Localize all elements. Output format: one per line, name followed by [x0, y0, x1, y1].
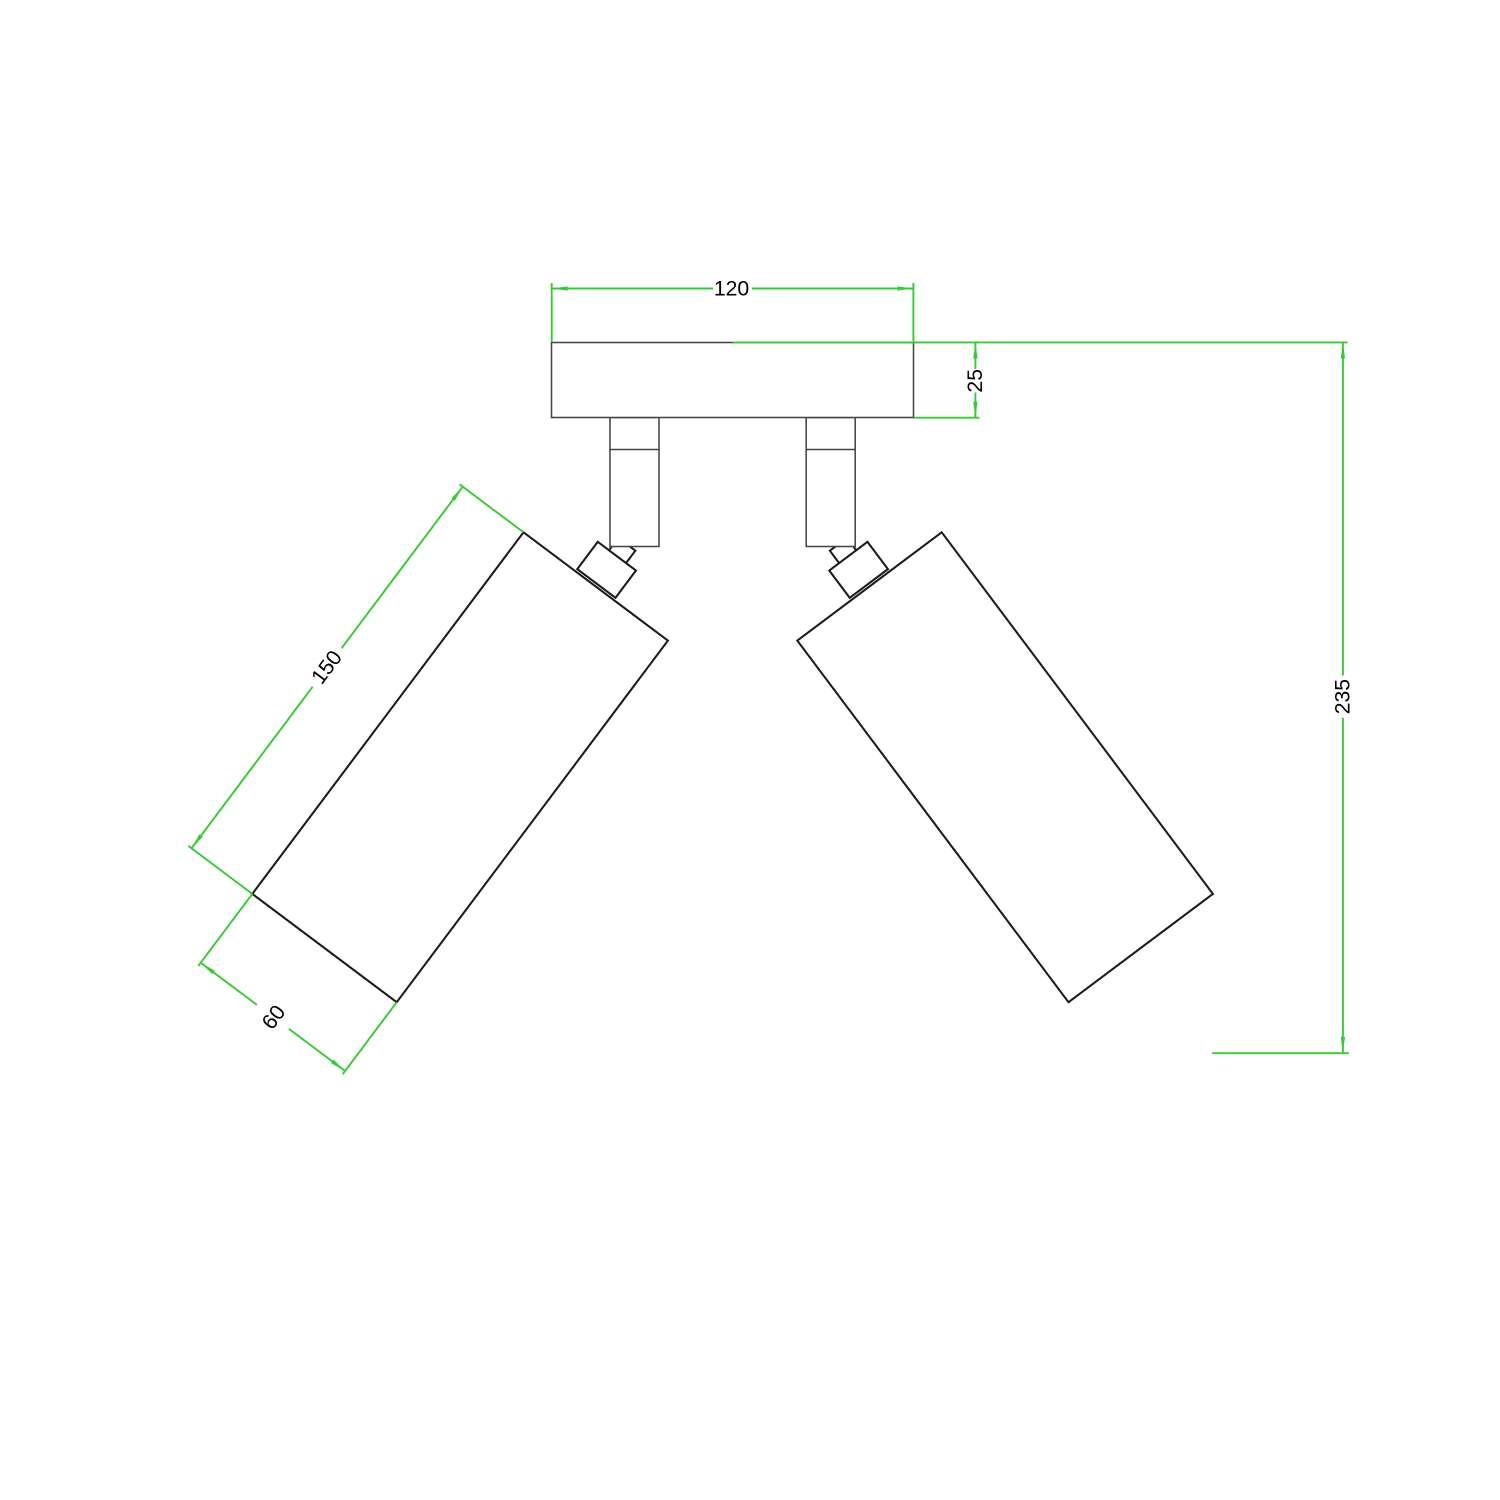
svg-text:120: 120: [714, 278, 749, 301]
svg-text:25: 25: [964, 369, 987, 393]
svg-text:235: 235: [1331, 679, 1354, 714]
